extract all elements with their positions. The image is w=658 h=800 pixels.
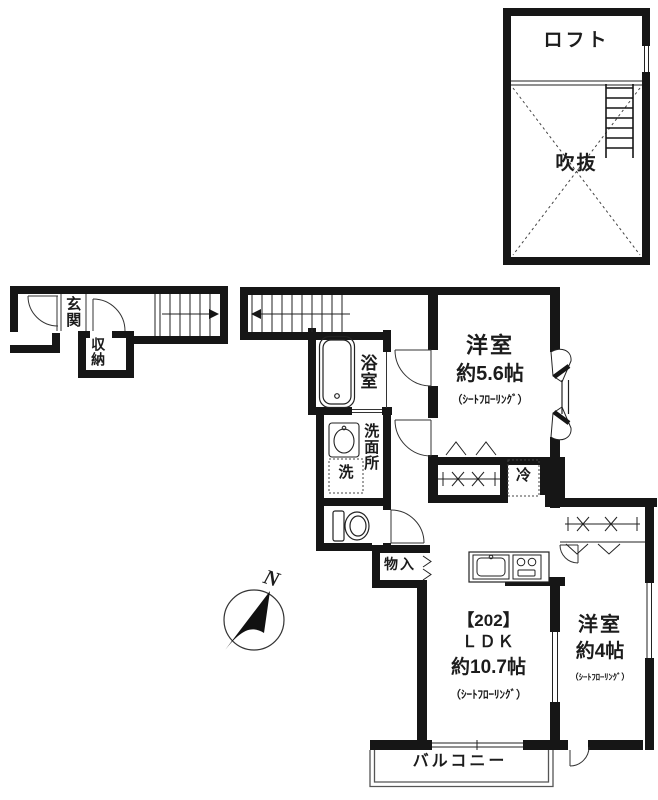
- bay-window: [551, 349, 571, 440]
- washroom-label: 洗面所: [362, 423, 379, 471]
- void-label: 吹抜: [503, 153, 650, 175]
- monoire-fold-marks: [423, 556, 431, 580]
- bathtub-icon: [320, 337, 355, 408]
- loft-label: ロフト: [503, 30, 650, 52]
- bedroom2-type: 洋室: [555, 614, 645, 637]
- balcony-door-arc: [570, 747, 589, 766]
- monoire-label: 物入: [378, 556, 422, 572]
- bedroom1-type: 洋室: [430, 333, 550, 358]
- kitchen-counter: [469, 552, 549, 582]
- ldk-type: ＬＤＫ: [417, 634, 560, 652]
- loft-ladder: [606, 84, 633, 158]
- bedroom2-flooring: （ｼｰﾄﾌﾛｰﾘﾝｸﾞ）: [555, 673, 645, 683]
- compass: [224, 590, 284, 650]
- balcony-label: バルコニー: [380, 753, 540, 771]
- bedroom2-area: 約4帖: [555, 641, 645, 663]
- first-floor-stairs: [155, 294, 219, 336]
- toilet-door-arc: [391, 510, 424, 543]
- loft-divider: [511, 81, 642, 85]
- bedroom1-area: 約5.6帖: [430, 363, 550, 386]
- ldk-south-window: [432, 740, 523, 750]
- ldk-unit-no: 【202】: [417, 611, 560, 631]
- washbasin-icon: [329, 423, 359, 457]
- bedroom1-door-arc: [395, 350, 431, 386]
- bedroom1-flooring: （ｼｰﾄﾌﾛｰﾘﾝｸﾞ）: [430, 394, 550, 407]
- bedroom2-closet: [560, 517, 645, 554]
- entrance-door-arc: [28, 296, 58, 326]
- ldk-area: 約10.7帖: [417, 657, 560, 679]
- entrance-label: 玄関: [64, 296, 81, 328]
- fridge-label: 冷: [508, 467, 539, 484]
- washer-label: 洗: [330, 464, 362, 481]
- toilet-icon: [333, 511, 369, 541]
- storage-label: 収納: [90, 337, 106, 367]
- entrance-walls: [10, 286, 228, 378]
- ldk-flooring: （ｼｰﾄﾌﾛｰﾘﾝｸﾞ）: [417, 689, 560, 702]
- washroom-door-arc: [395, 420, 431, 456]
- floor-plan: ロフト 吹抜 玄関 収納 浴室 洗面所 洗 物入 冷 洋室 約5.6帖 （ｼｰﾄ…: [0, 0, 658, 800]
- bedroom2-door-arc: [560, 545, 578, 563]
- bedroom2-east-window: [647, 583, 652, 658]
- storage-door-arc: [93, 299, 125, 331]
- bath-label: 浴室: [357, 354, 377, 390]
- second-floor-stairs: [251, 295, 350, 332]
